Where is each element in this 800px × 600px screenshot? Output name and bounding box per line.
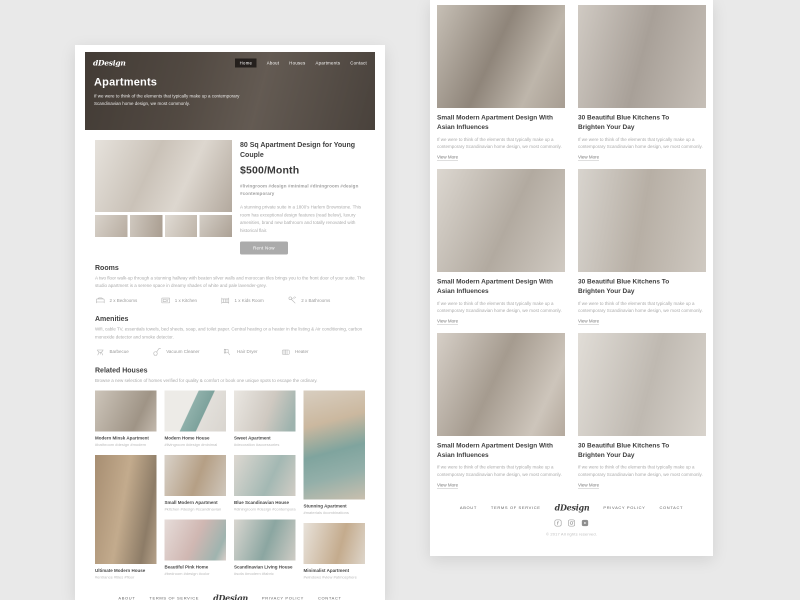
amenity-item-hair-dryer: Hair Dryer	[222, 346, 257, 357]
house-card[interactable]: Modern Minsk Apartment #bathroom #design…	[95, 391, 157, 448]
footer-links: ABOUT TERMS OF SERVICE dDesign PRIVACY P…	[430, 503, 713, 513]
amenity-item-label: Barbecue	[110, 349, 129, 354]
view-more-link[interactable]: View More	[578, 482, 599, 488]
footer-copyright: © 2017 All rights reserved.	[430, 532, 713, 537]
rooms-heading: Rooms	[95, 263, 365, 271]
house-card[interactable]: Stunning Apartment #materials #combinati…	[304, 391, 366, 516]
room-item-kids-room: 1 x Kids Room	[220, 295, 264, 306]
nav-item-houses[interactable]: Houses	[289, 61, 305, 66]
house-photo	[234, 520, 296, 561]
house-photo	[234, 391, 296, 432]
house-title: Scandinavian Living House	[234, 565, 296, 570]
house-tags: #diningroom #design #contemporary	[234, 507, 296, 512]
house-title: Ultimate Modern House	[95, 568, 157, 573]
amenities-heading: Amenities	[95, 315, 365, 323]
house-tags: #entrance #tiles #floor	[95, 575, 157, 580]
crib-icon	[220, 295, 231, 306]
related-column-1: Modern Minsk Apartment #bathroom #design…	[95, 391, 157, 580]
site-footer: ABOUT TERMS OF SERVICE dDesign PRIVACY P…	[430, 498, 713, 541]
amenity-item-label: Vacuum Cleaner	[166, 349, 199, 354]
footer-brand-logo[interactable]: dDesign	[555, 503, 590, 513]
house-title: Modern Home House	[165, 436, 227, 441]
listing-thumbnail-4[interactable]	[200, 215, 232, 237]
footer-link-terms[interactable]: TERMS OF SERVICE	[491, 505, 541, 510]
listing-thumbnails	[95, 215, 232, 237]
room-item-bathrooms: 2 x Bathrooms	[287, 295, 331, 306]
article-photo[interactable]	[437, 169, 565, 272]
rooms-text: A two floor walk-up through a stunning h…	[95, 274, 365, 289]
rooms-section: Rooms A two floor walk-up through a stun…	[95, 263, 365, 305]
listing-thumbnail-3[interactable]	[165, 215, 197, 237]
room-item-bedrooms: 2 x Bedrooms	[95, 295, 137, 306]
house-photo	[304, 523, 366, 564]
article-photo[interactable]	[437, 333, 565, 436]
listing-price: $500/Month	[240, 165, 365, 177]
article-title: 30 Beautiful Blue Kitchens To Brighten Y…	[578, 113, 696, 132]
footer-link-privacy[interactable]: PRIVACY POLICY	[603, 505, 645, 510]
nav-links: Home About Houses Apartments Contact	[235, 59, 367, 68]
article-excerpt: If we were to think of the elements that…	[578, 136, 706, 151]
article-card: 30 Beautiful Blue Kitchens To Brighten Y…	[578, 169, 706, 325]
house-title: Beautiful Pink Home	[165, 565, 227, 570]
related-intro: Browse a new selection of homes verified…	[95, 377, 365, 385]
amenity-item-label: Heater	[295, 349, 309, 354]
house-card[interactable]: Sweet Apartment #decoration #accessories	[234, 391, 296, 448]
room-item-label: 1 x Kids Room	[235, 298, 264, 303]
house-photo	[165, 455, 227, 496]
listing-hashtags: #livingroom #design #minimal #diningroom…	[240, 183, 365, 198]
article-title: Small Modern Apartment Design With Asian…	[437, 277, 555, 296]
house-photo	[95, 455, 157, 564]
article-photo[interactable]	[437, 5, 565, 108]
house-title: Minimalist Apartment	[304, 568, 366, 573]
related-grid: Modern Minsk Apartment #bathroom #design…	[95, 391, 365, 580]
nav-item-home[interactable]: Home	[235, 59, 257, 68]
house-card[interactable]: Minimalist Apartment #windows #view #atm…	[304, 523, 366, 580]
amenity-item-label: Hair Dryer	[237, 349, 258, 354]
house-photo	[95, 391, 157, 432]
footer-link-contact[interactable]: CONTACT	[660, 505, 684, 510]
related-column-3: Sweet Apartment #decoration #accessories…	[234, 391, 296, 580]
nav-item-apartments[interactable]: Apartments	[316, 61, 341, 66]
room-item-kitchen: 1 x Kitchen	[160, 295, 197, 306]
footer-link-about[interactable]: ABOUT	[118, 596, 135, 600]
page-title: Apartments	[94, 76, 366, 89]
article-card: Small Modern Apartment Design With Asian…	[437, 5, 565, 161]
facebook-icon[interactable]	[554, 519, 562, 527]
article-excerpt: If we were to think of the elements that…	[578, 300, 706, 315]
youtube-icon[interactable]	[581, 519, 589, 527]
listing-main-photo[interactable]	[95, 140, 232, 212]
house-card[interactable]: Scandinavian Living House #sofa #modern …	[234, 520, 296, 577]
footer-link-contact[interactable]: CONTACT	[318, 596, 342, 600]
footer-links: ABOUT TERMS OF SERVICE dDesign PRIVACY P…	[75, 594, 385, 600]
footer-link-about[interactable]: ABOUT	[460, 505, 477, 510]
kitchen-icon	[160, 295, 171, 306]
house-title: Blue Scandinavian House	[234, 500, 296, 505]
hair-dryer-icon	[222, 346, 233, 357]
article-excerpt: If we were to think of the elements that…	[437, 136, 565, 151]
heater-icon	[280, 346, 291, 357]
view-more-link[interactable]: View More	[437, 318, 458, 324]
house-tags: #decoration #accessories	[234, 443, 296, 448]
house-tags: #materials #combinations	[304, 511, 366, 516]
house-title: Modern Minsk Apartment	[95, 436, 157, 441]
room-item-label: 2 x Bathrooms	[301, 298, 330, 303]
article-card: Small Modern Apartment Design With Asian…	[437, 333, 565, 489]
house-tags: #livingroom #design #minimal	[165, 443, 227, 448]
vacuum-icon	[152, 346, 163, 357]
listing-info: 80 Sq Apartment Design for Young Couple …	[240, 140, 365, 254]
listing-thumbnail-2[interactable]	[130, 215, 162, 237]
amenity-item-barbecue: Barbecue	[95, 346, 129, 357]
article-photo[interactable]	[578, 333, 706, 436]
room-item-label: 1 x Kitchen	[175, 298, 197, 303]
top-navigation: dDesign Home About Houses Apartments Con…	[85, 52, 375, 68]
article-card: Small Modern Apartment Design With Asian…	[437, 169, 565, 325]
amenities-text: Wifi, cable TV, essentials towels, bed s…	[95, 326, 365, 341]
view-more-link[interactable]: View More	[437, 154, 458, 160]
articles-grid: Small Modern Apartment Design With Asian…	[430, 0, 713, 489]
view-more-link[interactable]: View More	[578, 318, 599, 324]
nav-item-about[interactable]: About	[267, 61, 280, 66]
house-tags: #windows #view #atmosphere	[304, 575, 366, 580]
house-title: Sweet Apartment	[234, 436, 296, 441]
house-photo	[165, 391, 227, 432]
bed-icon	[95, 295, 106, 306]
house-title: Stunning Apartment	[304, 504, 366, 509]
article-card: 30 Beautiful Blue Kitchens To Brighten Y…	[578, 5, 706, 161]
view-more-link[interactable]: View More	[437, 482, 458, 488]
room-item-label: 2 x Bedrooms	[110, 298, 138, 303]
rent-now-button[interactable]: Rent Now	[240, 241, 288, 254]
nav-item-contact[interactable]: Contact	[350, 61, 367, 66]
amenity-item-vacuum: Vacuum Cleaner	[152, 346, 200, 357]
house-card[interactable]: Ultimate Modern House #entrance #tiles #…	[95, 455, 157, 580]
house-tags: #bathroom #design #modern	[95, 443, 157, 448]
article-card: 30 Beautiful Blue Kitchens To Brighten Y…	[578, 333, 706, 489]
amenities-section: Amenities Wifi, cable TV, essentials tow…	[95, 315, 365, 357]
listing-gallery	[95, 140, 232, 254]
listing-description: A stunning private suite in a 1800's Har…	[240, 203, 365, 235]
instagram-icon[interactable]	[568, 519, 576, 527]
view-more-link[interactable]: View More	[578, 154, 599, 160]
shower-icon	[287, 295, 298, 306]
hero-banner: dDesign Home About Houses Apartments Con…	[85, 52, 375, 130]
house-photo	[165, 520, 227, 561]
house-photo	[234, 455, 296, 496]
listing-thumbnail-1[interactable]	[95, 215, 127, 237]
article-title: 30 Beautiful Blue Kitchens To Brighten Y…	[578, 277, 696, 296]
article-excerpt: If we were to think of the elements that…	[437, 464, 565, 479]
apartment-detail-page: dDesign Home About Houses Apartments Con…	[75, 45, 385, 600]
article-title: 30 Beautiful Blue Kitchens To Brighten Y…	[578, 441, 696, 460]
article-photo[interactable]	[578, 5, 706, 108]
related-houses-section: Related Houses Browse a new selection of…	[95, 366, 365, 580]
blog-listing-page: Small Modern Apartment Design With Asian…	[430, 0, 713, 556]
amenities-list: Barbecue Vacuum Cleaner Hair Dryer Heate…	[95, 346, 365, 357]
related-heading: Related Houses	[95, 366, 365, 374]
footer-social	[430, 519, 713, 527]
house-title: Small Modern Apartment	[165, 500, 227, 505]
page-subtitle: If we were to think of the elements that…	[94, 93, 249, 108]
footer-link-terms[interactable]: TERMS OF SERVICE	[149, 596, 199, 600]
barbecue-icon	[95, 346, 106, 357]
listing-title: 80 Sq Apartment Design for Young Couple	[240, 140, 365, 160]
listing-section: 80 Sq Apartment Design for Young Couple …	[95, 140, 365, 254]
brand-logo[interactable]: dDesign	[93, 59, 126, 68]
house-card[interactable]: Small Modern Apartment #kitchen #design …	[165, 455, 227, 512]
article-excerpt: If we were to think of the elements that…	[578, 464, 706, 479]
house-tags: #bedroom #design #color	[165, 572, 227, 577]
related-column-4: Stunning Apartment #materials #combinati…	[304, 391, 366, 580]
site-footer: ABOUT TERMS OF SERVICE dDesign PRIVACY P…	[75, 589, 385, 600]
footer-brand-logo[interactable]: dDesign	[213, 594, 248, 600]
article-photo[interactable]	[578, 169, 706, 272]
house-tags: #sofa #modern #fabric	[234, 572, 296, 577]
article-title: Small Modern Apartment Design With Asian…	[437, 113, 555, 132]
amenity-item-heater: Heater	[280, 346, 308, 357]
house-tags: #kitchen #design #scandinavian	[165, 507, 227, 512]
design-canvas: dDesign Home About Houses Apartments Con…	[0, 0, 800, 600]
house-card[interactable]: Blue Scandinavian House #diningroom #des…	[234, 455, 296, 512]
related-column-2: Modern Home House #livingroom #design #m…	[165, 391, 227, 580]
rooms-list: 2 x Bedrooms 1 x Kitchen 1 x Kids Room 2…	[95, 295, 365, 306]
house-photo	[304, 391, 366, 500]
footer-link-privacy[interactable]: PRIVACY POLICY	[262, 596, 304, 600]
article-title: Small Modern Apartment Design With Asian…	[437, 441, 555, 460]
house-card[interactable]: Modern Home House #livingroom #design #m…	[165, 391, 227, 448]
article-excerpt: If we were to think of the elements that…	[437, 300, 565, 315]
house-card[interactable]: Beautiful Pink Home #bedroom #design #co…	[165, 520, 227, 577]
